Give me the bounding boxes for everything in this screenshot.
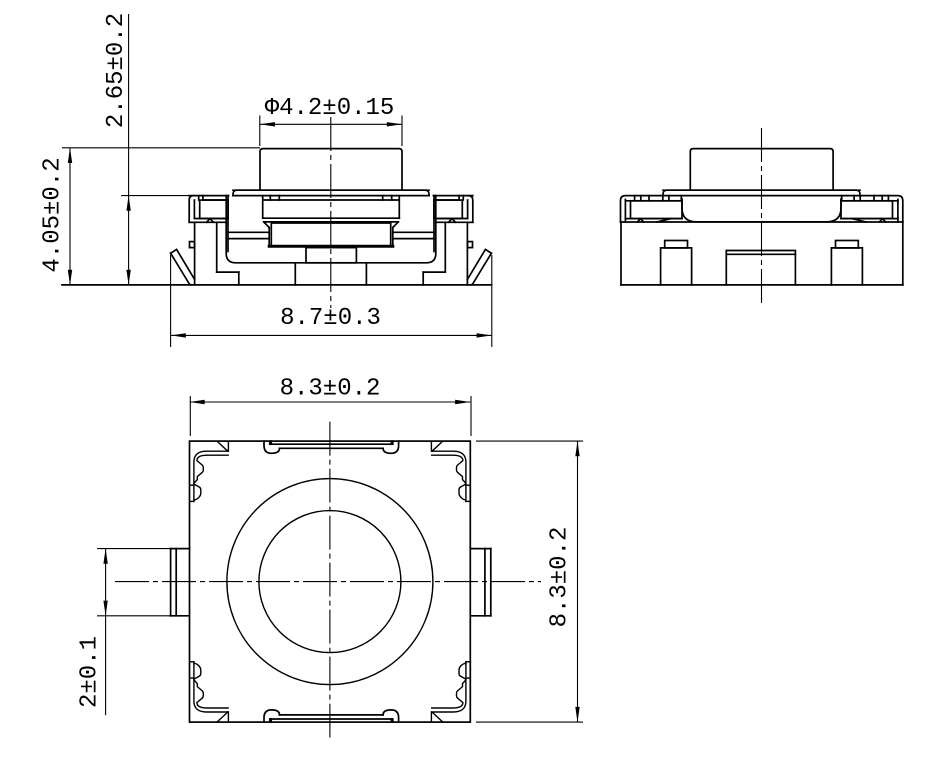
svg-text:2.65±0.2: 2.65±0.2 [103,13,130,128]
svg-text:8.3±0.2: 8.3±0.2 [280,376,381,403]
svg-text:2±0.1: 2±0.1 [77,636,104,708]
svg-text:8.3±0.2: 8.3±0.2 [547,527,574,628]
svg-text:4.05±0.2: 4.05±0.2 [40,157,67,272]
svg-text:Φ4.2±0.15: Φ4.2±0.15 [265,95,395,122]
svg-text:8.7±0.3: 8.7±0.3 [280,305,381,332]
